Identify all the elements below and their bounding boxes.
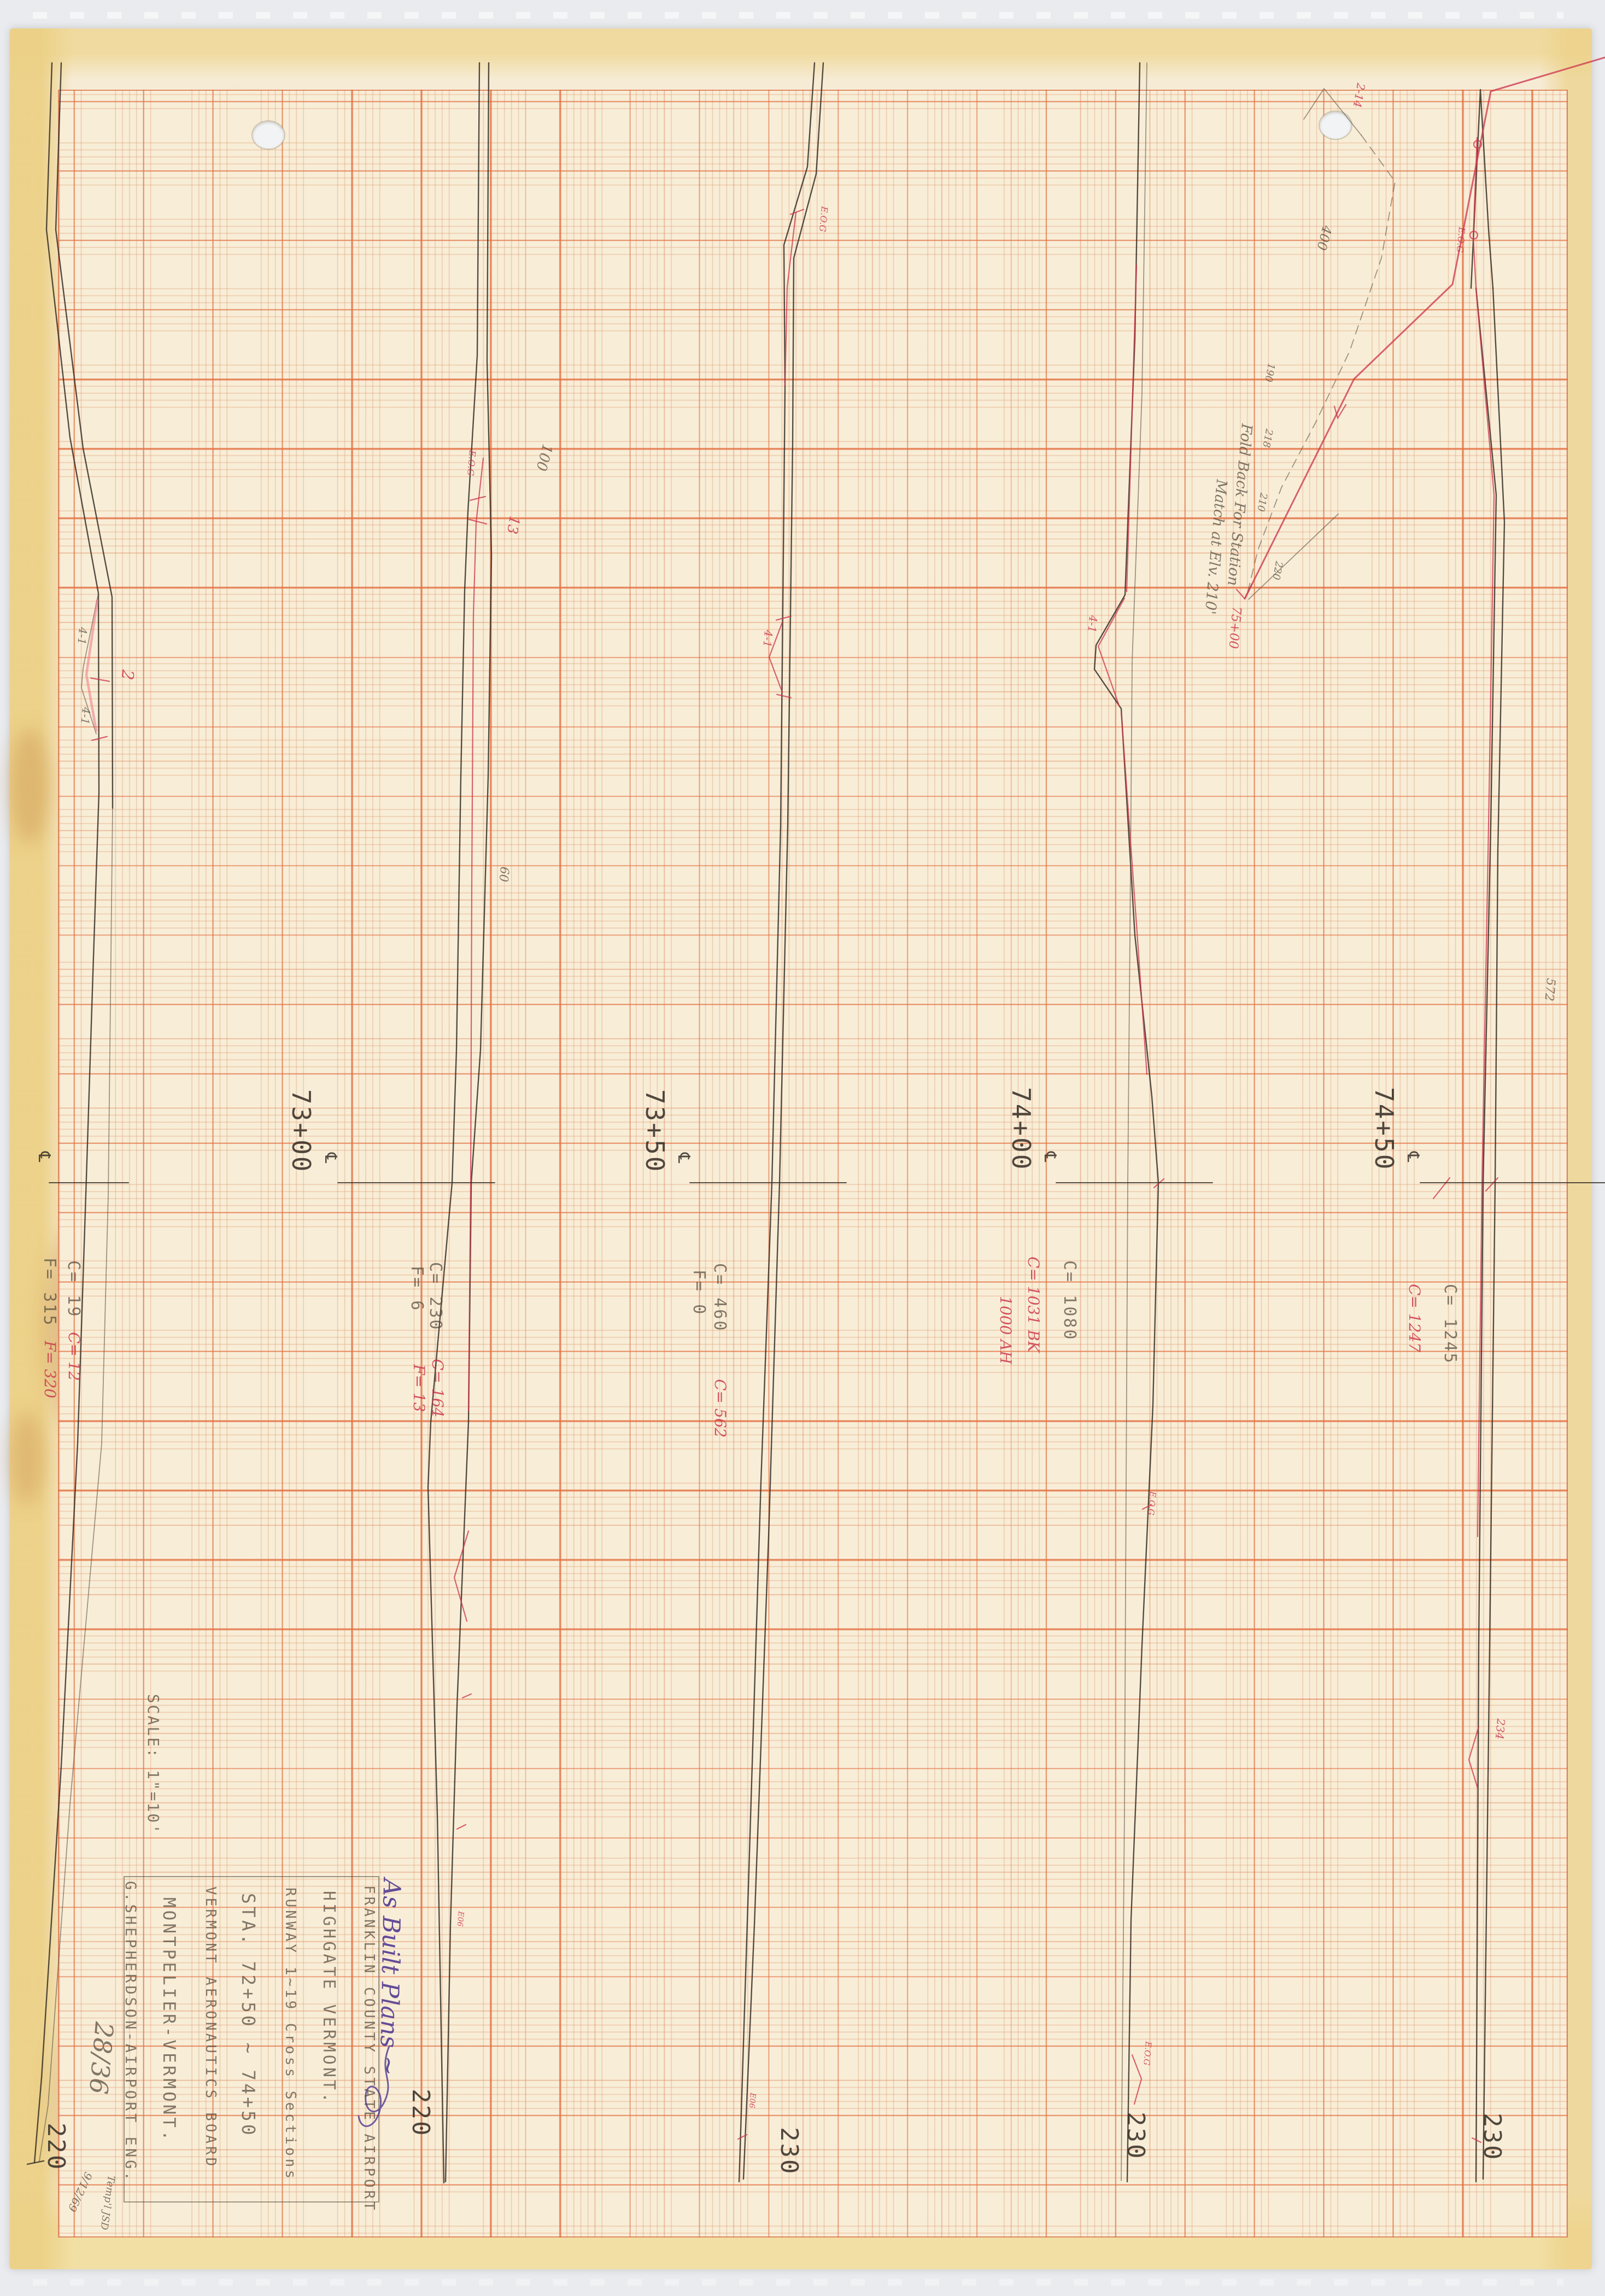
cutfill-pencil: F= 6 — [408, 1266, 426, 1312]
red-note: E.O.G — [465, 450, 477, 476]
cutfill-red: F= 13 — [411, 1364, 427, 1412]
fold-note: Fold Back For Station — [1225, 423, 1254, 587]
station-label: 73+00 — [288, 1089, 314, 1173]
centerline-symbol: ℄ — [322, 1153, 339, 1163]
title-line: FRANKLIN COUNTY STATE AIRPORT — [361, 1885, 376, 2213]
slope-note: 4-1 — [75, 627, 89, 645]
cutfill-red: F= 320 — [42, 1341, 58, 1398]
station-label: 74+50 — [1371, 1087, 1397, 1171]
title-line: G.SHEPHERDSON-AIRPORT ENG. — [122, 1881, 138, 2183]
scale-note: SCALE: 1"=10' — [145, 1694, 161, 1835]
cutfill-red: C= 562 — [712, 1379, 728, 1438]
elevation-label: 230 — [776, 2127, 801, 2175]
pencil-note: 572 — [1542, 978, 1557, 1002]
pencil-note: 60 — [497, 866, 511, 883]
red-note: E.O.G — [1455, 227, 1466, 253]
cutfill-red: C= 164 — [430, 1359, 446, 1417]
spot-elevation: 190 — [1262, 363, 1276, 383]
elevation-label: 230 — [1479, 2113, 1504, 2161]
as-built-label: As Built Plans ~ — [376, 1878, 404, 2076]
cutfill-pencil: F= 315 — [41, 1258, 58, 1327]
cutfill-pencil: C= 460 — [711, 1263, 729, 1332]
title-line: VERMONT AERONAUTICS BOARD — [203, 1886, 218, 2169]
red-note: E.O.G — [817, 206, 829, 232]
elevation-label: 220 — [408, 2089, 433, 2137]
cutfill-pencil: C= 1245 — [1442, 1284, 1459, 1364]
cutfill-pencil: C= 1080 — [1061, 1260, 1079, 1341]
centerline-symbol: ℄ — [675, 1153, 693, 1163]
centerline-symbol: ℄ — [36, 1152, 53, 1162]
cutfill-red: 1000 AH — [998, 1296, 1014, 1364]
cutfill-red: C= 1031 BK — [1026, 1257, 1041, 1352]
elevation-label: 230 — [1123, 2112, 1148, 2160]
elevation-label: 220 — [43, 2123, 68, 2171]
red-note: 2 — [118, 669, 136, 681]
date-scribble: 9/12/69 — [66, 2170, 94, 2213]
sheet-number: 28/36 — [85, 2021, 118, 2095]
slope-note: 4-1 — [79, 706, 92, 725]
scanned-drawing-page: 73+0073+5074+0074+50℄℄℄℄℄220220230230230… — [0, 0, 1605, 2296]
cutfill-red: C= 1247 — [1407, 1284, 1422, 1352]
red-note: E.O.G — [1146, 1491, 1157, 1516]
spot-elevation: 210 — [1255, 492, 1268, 512]
title-line: HIGHGATE VERMONT. — [320, 1891, 338, 2105]
red-note: 234 — [1493, 1718, 1507, 1740]
centerline-symbol: ℄ — [1041, 1152, 1059, 1162]
title-line: MONTPELIER-VERMONT. — [160, 1897, 178, 2143]
fold-note: Match at Elv. 210' — [1202, 479, 1229, 615]
station-label: 73+50 — [642, 1089, 668, 1173]
date-scribble: Temp'l JSD — [98, 2175, 116, 2230]
spot-elevation: 220 — [1270, 560, 1284, 581]
fold-note-station: 75+00 — [1226, 606, 1243, 650]
red-note: 2-14 — [1351, 82, 1367, 108]
slope-note-red: 4-1 — [761, 629, 774, 648]
red-note: 13 — [503, 515, 522, 535]
spot-elevation: 218 — [1260, 428, 1274, 448]
red-note: E06 — [455, 1911, 465, 1927]
cutfill-red: C= 12 — [66, 1332, 82, 1381]
station-label: 74+00 — [1008, 1087, 1034, 1171]
title-line: RUNWAY 1~19 Cross Sections — [283, 1888, 297, 2181]
pencil-note: 400 — [1314, 224, 1334, 252]
rotated-annotations-layer: 73+0073+5074+0074+50℄℄℄℄℄220220230230230… — [0, 0, 1605, 2296]
cutfill-pencil: F= 0 — [690, 1270, 708, 1316]
slope-note-red: 4-1 — [1086, 615, 1099, 633]
cutfill-pencil: C= 19 — [65, 1260, 83, 1318]
red-note: E.O.G — [1141, 2041, 1152, 2066]
red-note: E06 — [747, 2093, 757, 2108]
cutfill-pencil: C= 230 — [427, 1262, 444, 1331]
pencil-note: 100 — [533, 442, 554, 472]
title-line: STA. 72+50 ~ 74+50 — [238, 1893, 257, 2138]
centerline-symbol: ℄ — [1404, 1152, 1422, 1162]
